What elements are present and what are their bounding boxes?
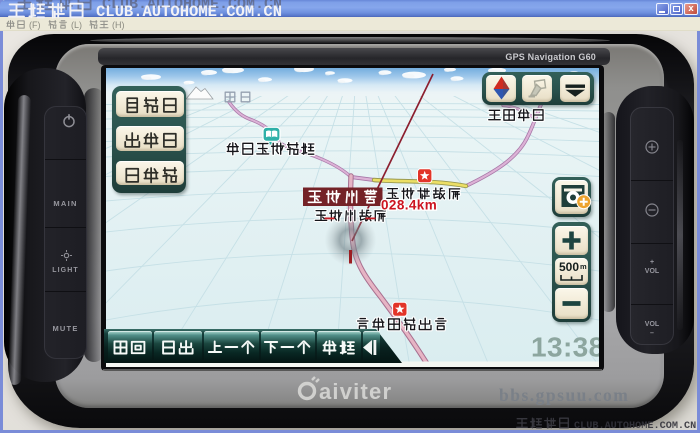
svg-text:CLUB.AUTOHOME.COM.CN: CLUB.AUTOHOME.COM.CN [574, 421, 696, 431]
svg-text:aiviter: aiviter [319, 379, 392, 404]
svg-text:028.4km: 028.4km [381, 198, 437, 213]
svg-text:(H): (H) [112, 20, 125, 30]
svg-text:m: m [580, 262, 587, 271]
svg-text:(L): (L) [71, 20, 82, 30]
svg-text:(F): (F) [29, 20, 41, 30]
svg-text:500: 500 [559, 260, 579, 274]
svg-text:13:38: 13:38 [531, 332, 599, 363]
